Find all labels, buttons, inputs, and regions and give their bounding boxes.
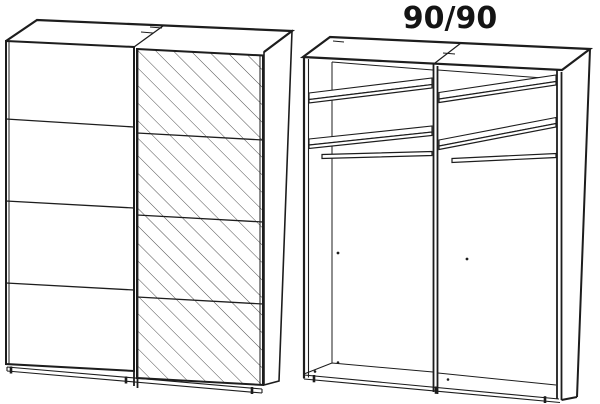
dimension-label: 90/90 — [403, 1, 497, 36]
mirror-door-hatch — [137, 49, 263, 385]
door-panel-line — [6, 283, 134, 290]
interior-floor — [304, 363, 556, 385]
door-overlap-divider — [134, 46, 138, 388]
diagram-canvas: 90/90 — [0, 0, 600, 404]
front-right-side-panel — [264, 31, 292, 385]
shelf-1 — [439, 75, 556, 103]
wardrobe-front-view — [6, 20, 292, 394]
right-compartment — [439, 75, 556, 163]
left-sliding-door — [6, 41, 134, 371]
center-divider-panel — [434, 64, 438, 394]
drill-hole — [337, 361, 340, 364]
right-side-panel-outer-edge — [562, 49, 591, 400]
wardrobe-interior-view — [303, 37, 590, 403]
drill-hole — [466, 258, 469, 261]
hanging-rail — [452, 154, 556, 163]
door-panel-line — [6, 119, 134, 127]
drill-hole — [447, 378, 450, 381]
shelf-1 — [309, 78, 432, 103]
drill-holes — [314, 252, 469, 381]
drill-hole — [337, 252, 340, 255]
interior-right-side-panel — [557, 70, 562, 400]
shelf-2 — [439, 118, 556, 150]
door-glide-marks — [141, 27, 162, 33]
mirror-sliding-door — [137, 49, 263, 385]
door-panel-line — [6, 201, 134, 208]
interior-left-side-panel — [304, 57, 309, 378]
interior-base-plinth — [304, 375, 560, 403]
top-door-partition-line — [134, 26, 163, 47]
drill-hole — [314, 370, 317, 373]
wardrobe-diagram: 90/90 — [0, 0, 600, 404]
left-compartment — [309, 78, 432, 159]
hanging-rail — [322, 152, 432, 159]
shelf-2 — [309, 126, 432, 149]
